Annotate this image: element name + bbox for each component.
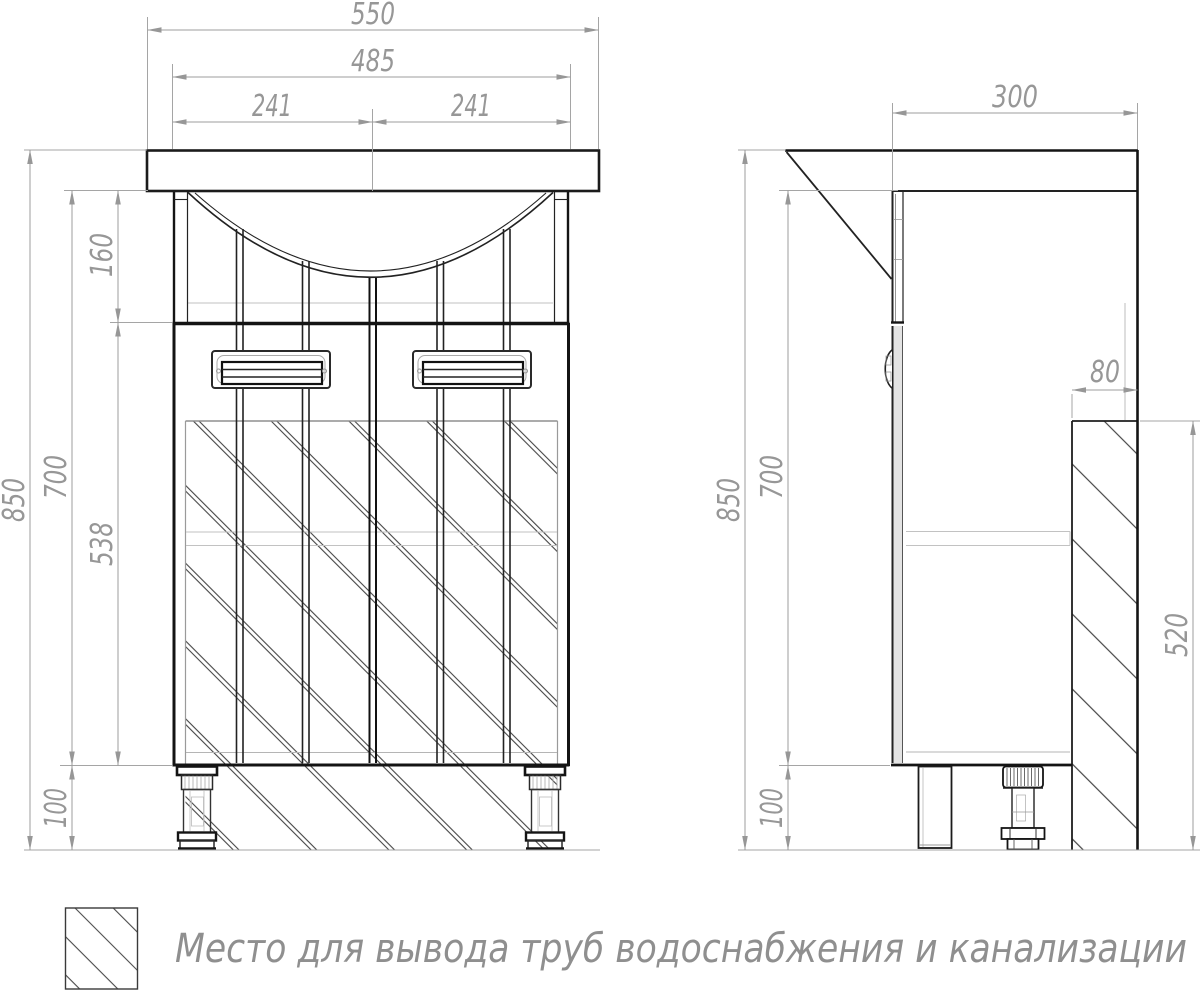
front-pipe-zone-hatch	[186, 421, 558, 850]
right-door-handle	[413, 351, 531, 388]
dim-basin-half-left: 241	[252, 89, 292, 124]
dim-basin-half-right: 241	[451, 89, 491, 124]
dim-pipe-zone-height: 520	[1160, 613, 1195, 657]
dim-door-height: 538	[85, 522, 120, 566]
side-front-leg	[919, 767, 952, 849]
front-view: 550 485 241 241 850 700 160 538 100	[0, 0, 600, 850]
technical-drawing-page: 550 485 241 241 850 700 160 538 100	[0, 0, 1200, 992]
side-pipe-zone-hatch	[1072, 421, 1138, 850]
legend: Место для вывода труб водоснабжения и ка…	[66, 908, 1188, 989]
side-countertop	[785, 151, 1138, 280]
legend-label: Место для вывода труб водоснабжения и ка…	[175, 926, 1187, 972]
dim-side-leg-height: 100	[755, 788, 790, 828]
dim-overall-width: 550	[351, 0, 395, 32]
left-door-handle	[212, 351, 330, 388]
dim-side-total-height: 850	[712, 478, 747, 522]
side-front-panel	[891, 191, 904, 323]
dim-depth: 300	[992, 80, 1038, 115]
dim-total-height: 850	[0, 478, 32, 522]
adjustable-foot	[1002, 767, 1045, 850]
side-door	[885, 326, 903, 763]
dim-leg-height: 100	[39, 788, 74, 828]
dim-body-height: 700	[39, 455, 74, 499]
vanity-cabinet-drawing: 550 485 241 241 850 700 160 538 100	[0, 0, 1200, 992]
dim-pipe-zone-width: 80	[1090, 355, 1120, 390]
basin-profile-slope	[787, 152, 892, 279]
dim-apron-height: 160	[85, 233, 120, 277]
legend-hatch-swatch	[66, 908, 138, 989]
dim-side-body-height: 700	[755, 455, 790, 499]
side-view: 300 850 700 100 80 520	[712, 80, 1200, 850]
dim-basin-width: 485	[351, 44, 395, 79]
